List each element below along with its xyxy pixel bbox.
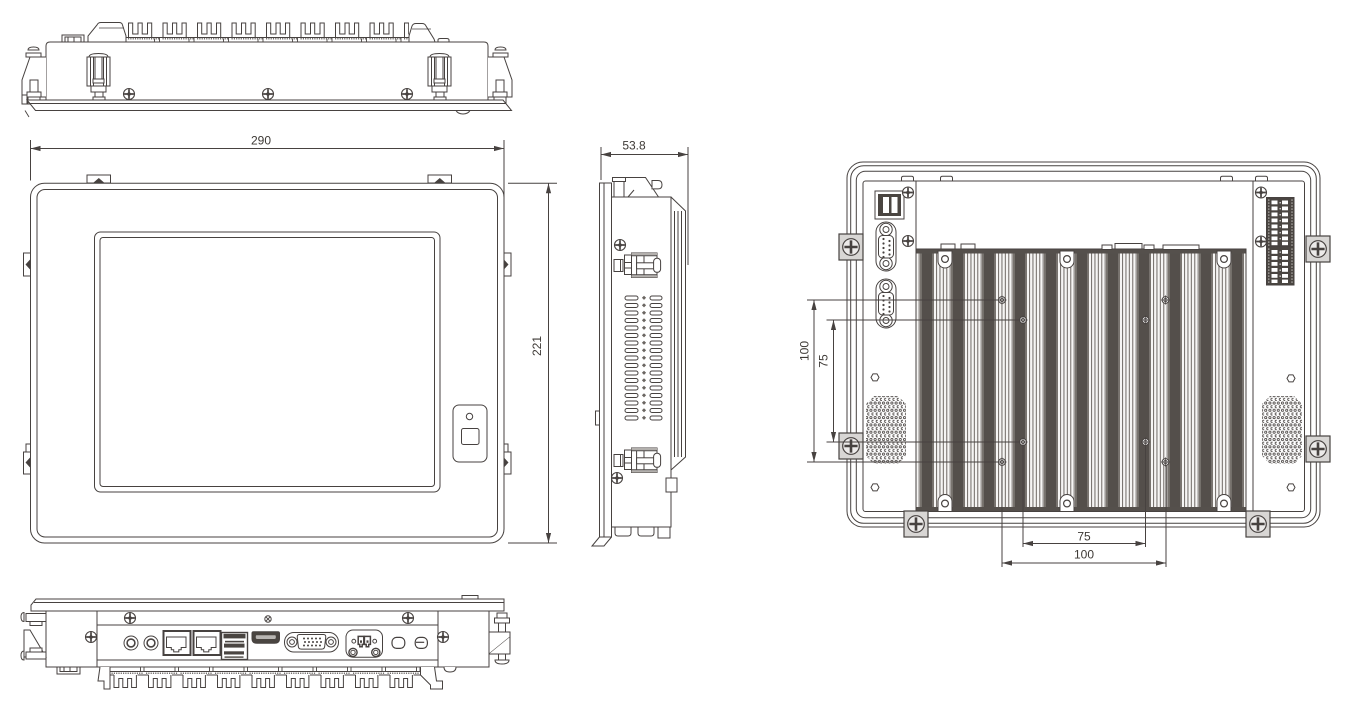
svg-text:100: 100 (1074, 548, 1094, 562)
svg-text:53.8: 53.8 (622, 139, 646, 153)
svg-text:100: 100 (798, 341, 812, 361)
svg-text:75: 75 (817, 354, 831, 368)
svg-text:75: 75 (1077, 530, 1091, 544)
svg-text:290: 290 (251, 134, 271, 148)
svg-text:221: 221 (530, 336, 544, 356)
